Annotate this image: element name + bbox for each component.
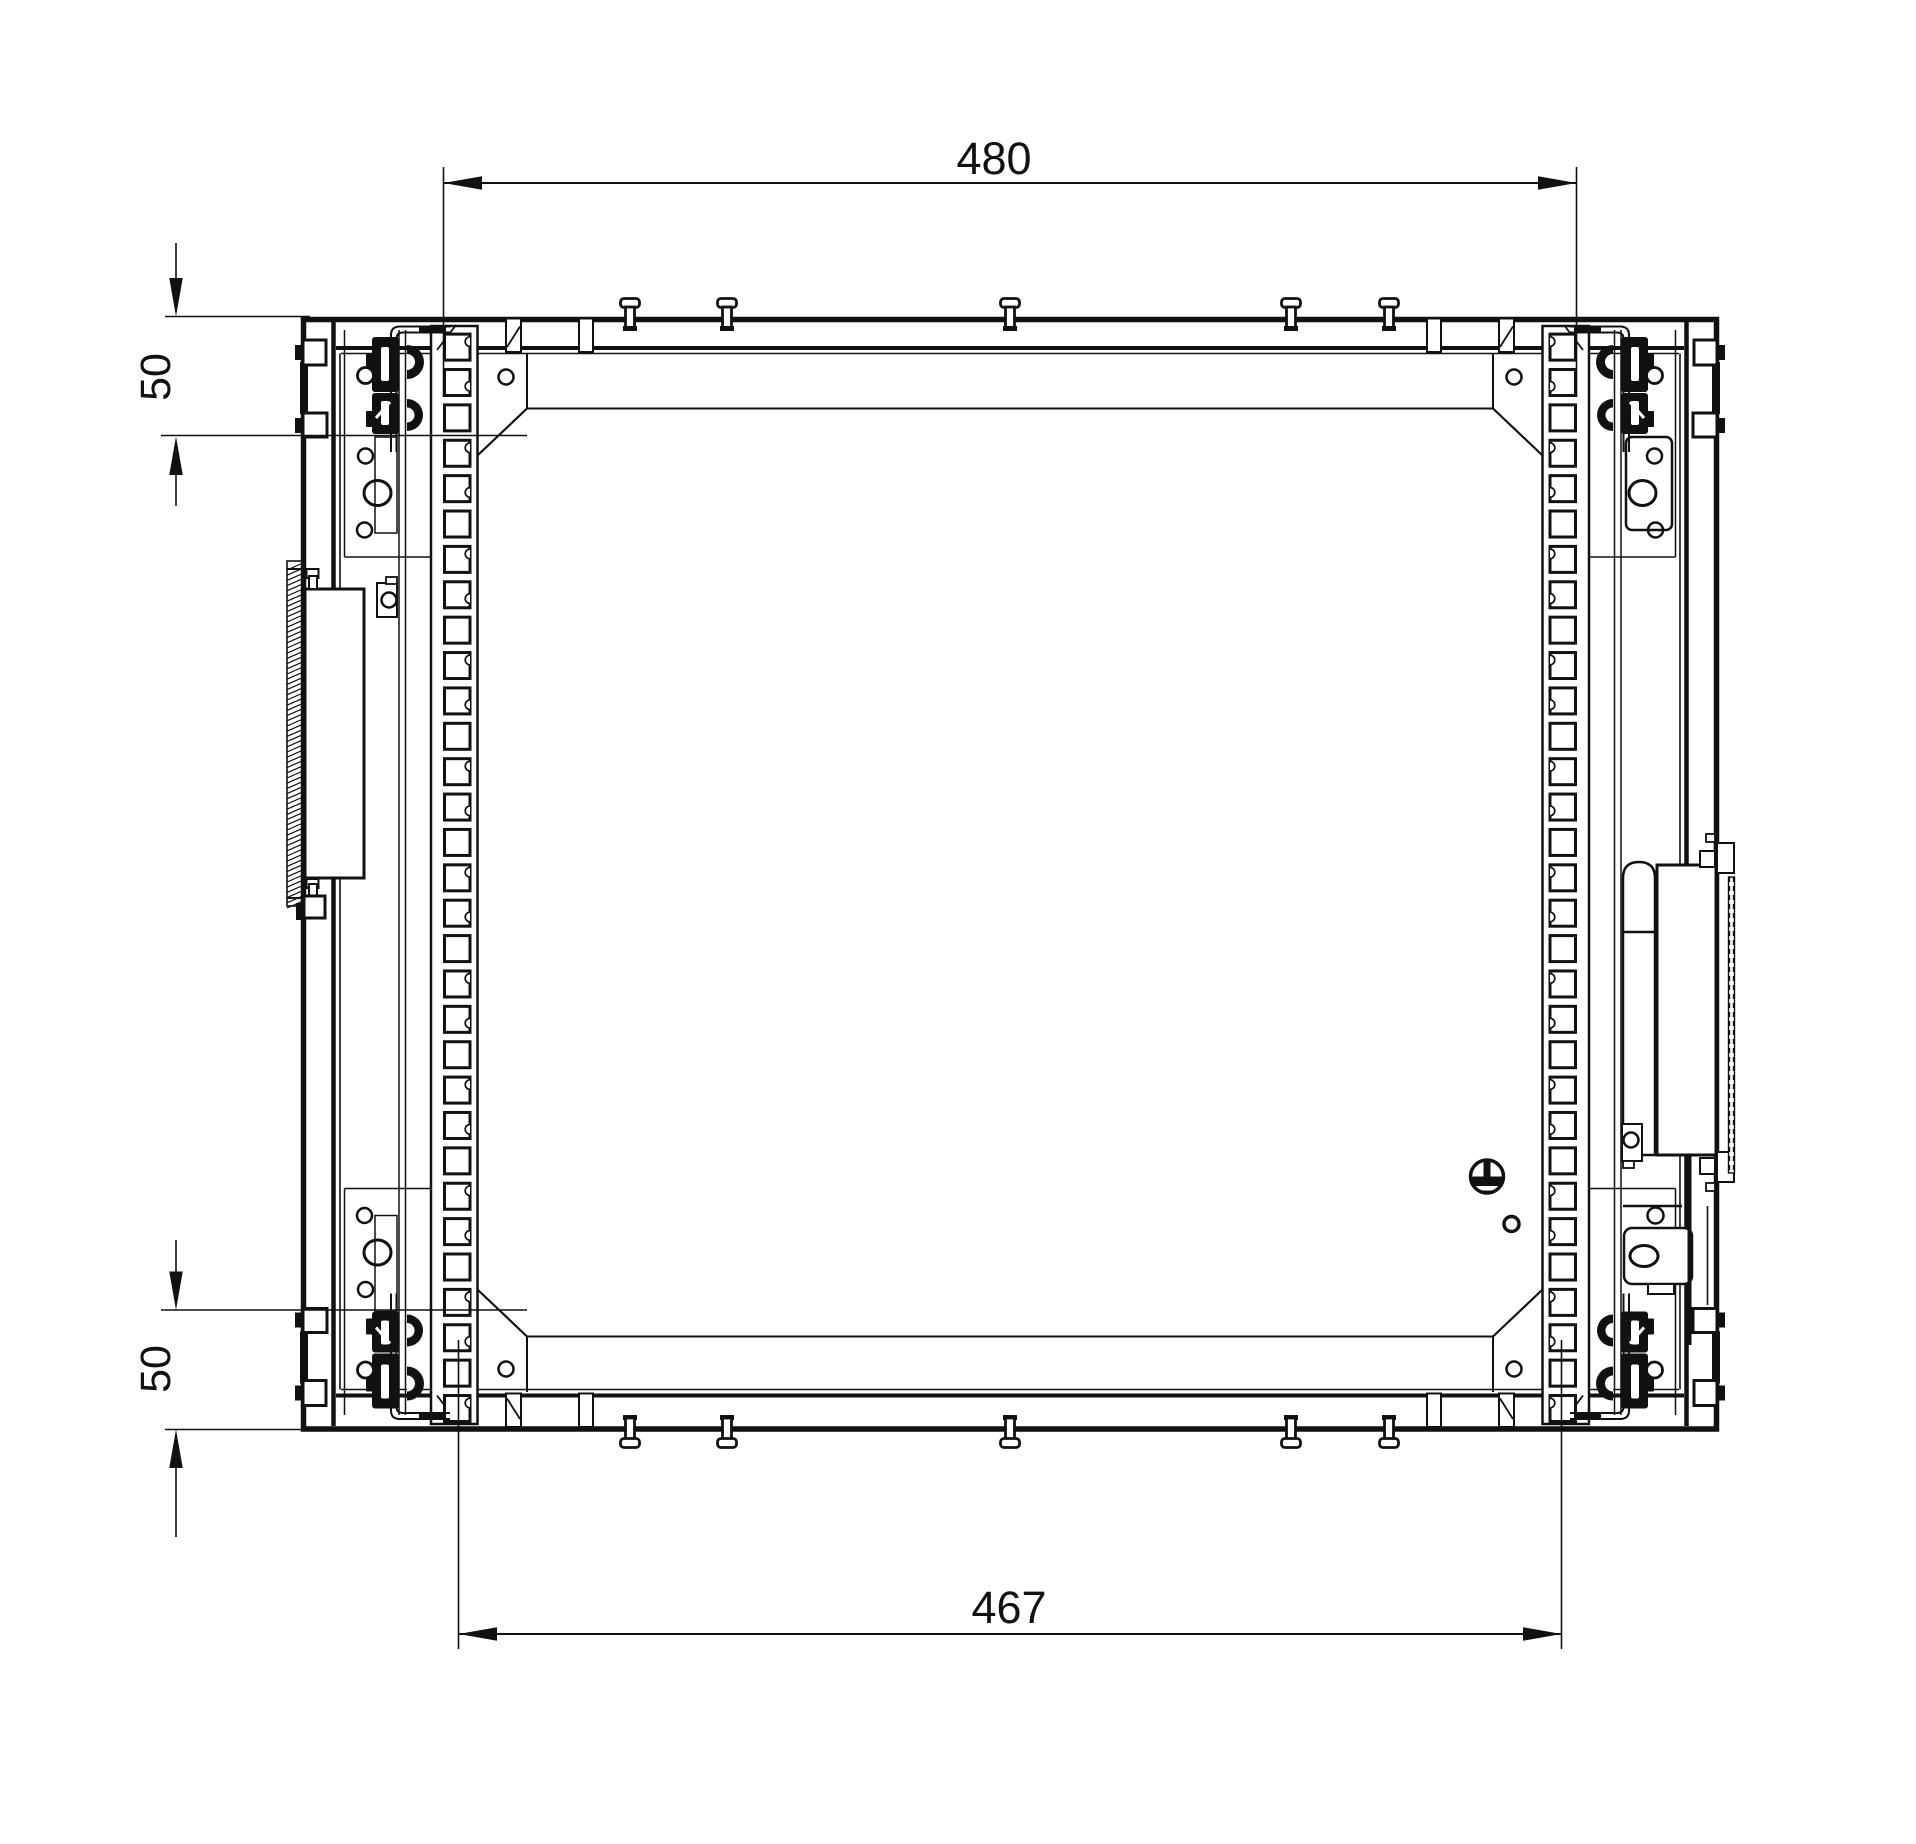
svg-text:467: 467 <box>971 1582 1046 1633</box>
svg-text:50: 50 <box>132 353 180 401</box>
svg-text:480: 480 <box>956 133 1031 184</box>
svg-text:50: 50 <box>132 1345 180 1393</box>
